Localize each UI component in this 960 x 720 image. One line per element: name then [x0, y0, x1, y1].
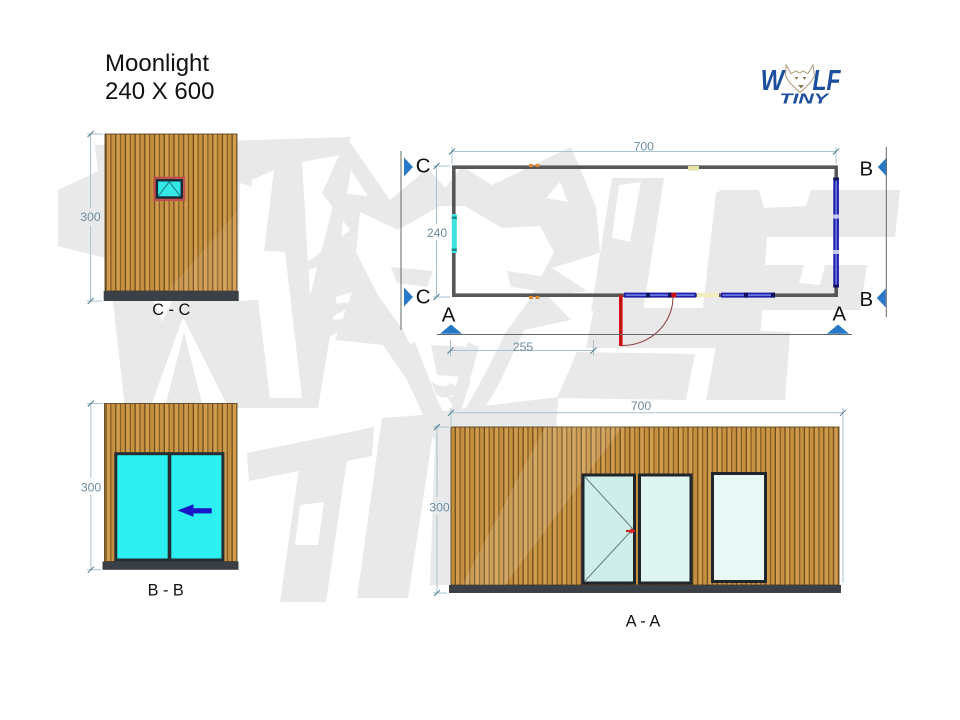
- svg-text:300: 300: [429, 501, 450, 515]
- svg-text:240: 240: [427, 226, 448, 240]
- svg-text:Moonlight: Moonlight: [105, 50, 209, 77]
- svg-text:255: 255: [513, 340, 534, 354]
- svg-text:A: A: [442, 305, 456, 327]
- svg-text:700: 700: [631, 399, 652, 413]
- svg-text:C: C: [416, 287, 431, 309]
- svg-text:300: 300: [80, 210, 101, 224]
- svg-text:C - C: C - C: [152, 301, 190, 319]
- svg-text:TINY: TINY: [780, 92, 830, 108]
- svg-text:240 X 600: 240 X 600: [105, 78, 214, 105]
- svg-text:B - B: B - B: [148, 582, 184, 600]
- svg-text:300: 300: [81, 481, 102, 495]
- svg-text:A - A: A - A: [626, 613, 661, 631]
- svg-text:700: 700: [634, 140, 655, 154]
- svg-text:C: C: [416, 156, 431, 178]
- svg-text:B: B: [860, 159, 874, 181]
- svg-text:A: A: [833, 304, 847, 326]
- svg-text:B: B: [860, 289, 874, 311]
